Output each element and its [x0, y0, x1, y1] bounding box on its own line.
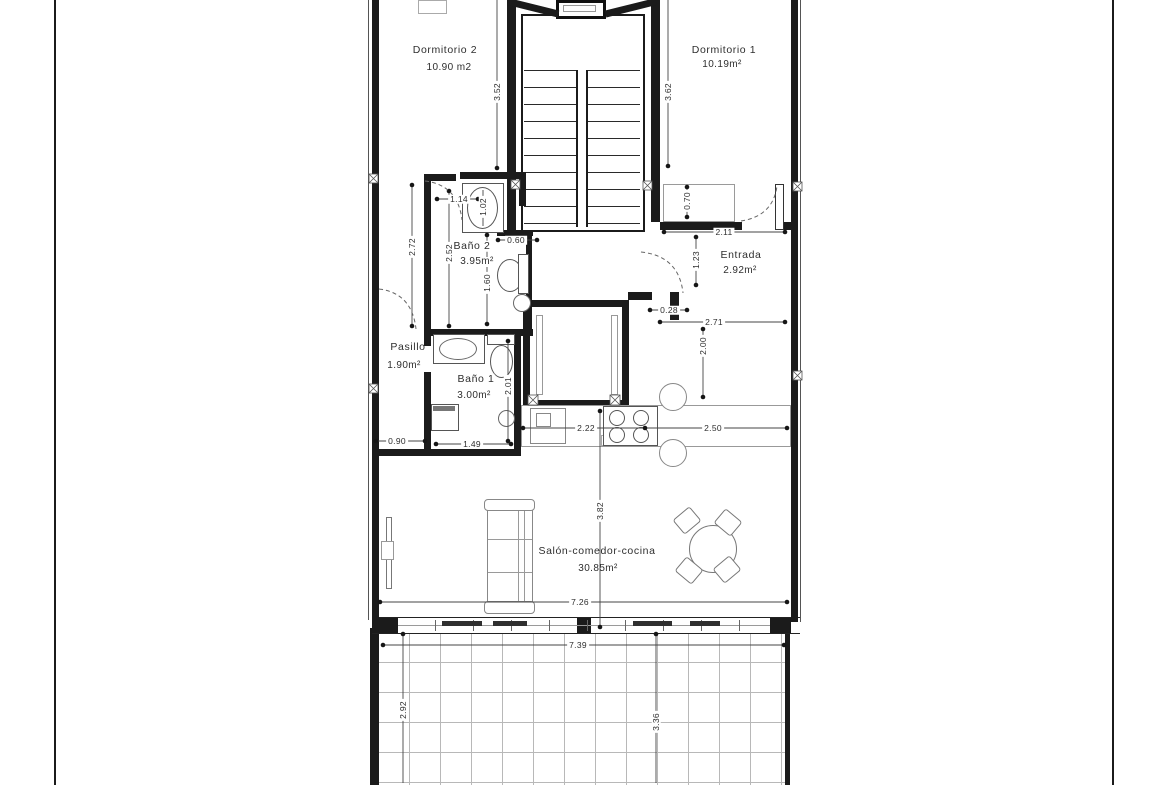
- dim-banyo1-width: 1.49: [461, 440, 483, 449]
- room-area-dormitorio2: 10.90 m2: [427, 63, 472, 73]
- room-label-entrada: Entrada: [721, 250, 762, 261]
- dim-entrada-width: 2.71: [703, 318, 725, 327]
- room-area-banyo1: 3.00m²: [457, 391, 491, 401]
- room-label-pasillo: Pasillo: [390, 342, 425, 353]
- room-label-banyo2: Baño 2: [454, 241, 491, 252]
- room-label-banyo1: Baño 1: [458, 374, 495, 385]
- dim-shower-width: 1.02: [479, 196, 488, 218]
- dim-banyo1-depth: 2.01: [504, 375, 513, 397]
- room-area-salon: 30.85m²: [578, 564, 618, 574]
- dim-entrada-closet: 0.70: [683, 190, 692, 212]
- dim-salon-depth: 3.82: [596, 500, 605, 522]
- dim-pasillo-width: 0.90: [386, 437, 408, 446]
- dim-kitchen-right: 2.50: [702, 424, 724, 433]
- room-area-pasillo: 1.90m²: [387, 361, 421, 371]
- dim-terrace-left: 2.92: [399, 699, 408, 721]
- room-label-dormitorio1: Dormitorio 1: [692, 45, 756, 56]
- dim-entrada-inner: 1.23: [692, 249, 701, 271]
- dim-entrada-depth: 2.00: [699, 335, 708, 357]
- dim-terrace-width: 7.39: [567, 641, 589, 650]
- room-label-dormitorio2: Dormitorio 2: [413, 45, 477, 56]
- room-area-dormitorio1: 10.19m²: [702, 60, 742, 70]
- floor-plan: Dormitorio 2 10.90 m2 Dormitorio 1 10.19…: [0, 0, 1170, 785]
- room-area-banyo2: 3.95m²: [460, 257, 494, 267]
- dim-dorm2-depth: 3.52: [493, 81, 502, 103]
- dim-terrace-right: 3.36: [652, 711, 661, 733]
- dim-banyo2-width: 1.60: [483, 272, 492, 294]
- dim-entrada-top: 2.11: [713, 228, 734, 237]
- dim-banyo2-niche: 0.60: [505, 236, 527, 245]
- dim-kitchen-left: 2.22: [575, 424, 597, 433]
- dim-dorm2-door: 1.14: [448, 195, 470, 204]
- room-label-salon: Salón-comedor-cocina: [538, 546, 655, 557]
- dim-dorm1-depth: 3.62: [664, 81, 673, 103]
- dim-wall-stub: 0.28: [658, 306, 680, 315]
- room-area-entrada: 2.92m²: [723, 266, 757, 276]
- dim-salon-width: 7.26: [569, 598, 591, 607]
- dim-banyo2-inner: 2.52: [445, 242, 454, 264]
- dim-banyo2-height: 2.72: [408, 236, 417, 258]
- annotation-layer: [0, 0, 1170, 785]
